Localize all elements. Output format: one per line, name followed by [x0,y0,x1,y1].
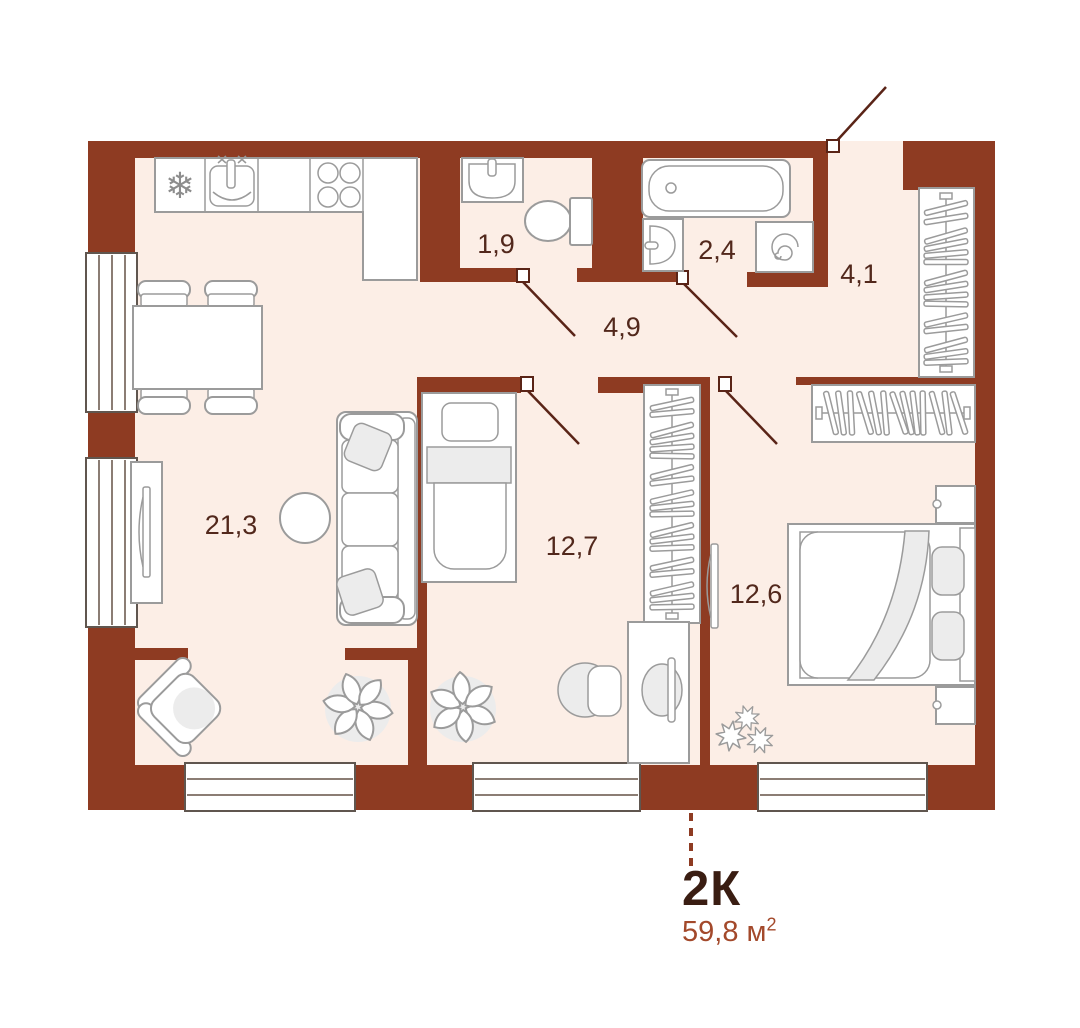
double-bed [788,524,975,685]
tv-stand [131,462,162,603]
floor-plan-canvas: ❄ [0,0,1080,1028]
wardrobe [812,385,975,442]
single-bed [422,393,516,582]
room-label-bedroom-1: 12,7 [546,531,599,561]
wardrobe [644,385,700,623]
window-bedroom1-bottom [473,763,640,811]
room-label-kitchen-living: 21,3 [205,510,258,540]
floor-plan-drawing: ❄ [0,0,1080,1028]
unit-type-label: 2К [682,864,776,915]
unit-caption: 2К 59,8 м2 [682,864,776,949]
washing-machine [756,222,813,272]
window-living-left [86,253,137,412]
apartment-floor [88,141,995,810]
coffee-table [280,493,330,543]
unit-area-label: 59,8 м2 [682,916,776,949]
room-label-bathroom: 2,4 [698,235,736,265]
wc-sink [462,158,523,202]
sofa [335,412,417,625]
desk-chair [558,663,621,717]
wardrobe [919,188,974,377]
desk [628,622,689,763]
bathtub [642,160,790,217]
window-living-left-2 [86,458,137,627]
room-label-hallway: 4,9 [603,312,641,342]
fridge-snowflake-icon: ❄ [165,166,195,207]
window-living-bottom [185,763,355,811]
room-label-bedroom-2: 12,6 [730,579,783,609]
unit-area-superscript: 2 [766,915,776,935]
window-bedroom2-bottom [758,763,927,811]
room-label-entry-hall: 4,1 [840,259,878,289]
room-label-wc: 1,9 [477,229,515,259]
toilet [525,198,592,245]
bath-sink [643,219,683,271]
